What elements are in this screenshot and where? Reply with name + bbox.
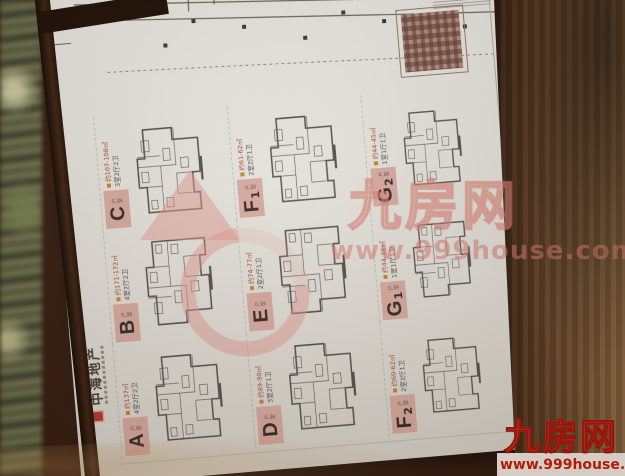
unit-cell-f2: F2 户型 约60-62㎡ 2室2厅1卫 [379,311,522,436]
unit-letter: F [394,415,415,429]
unit-letter-sub: 2 [381,178,397,187]
unit-label-tag: 户型 [244,183,257,191]
unit-spec: 约171-172㎡ 4室2厅2卫 [109,254,132,302]
unit-letter: G [375,186,396,203]
bullet-icon [250,286,254,290]
unit-label-tag: 户型 [387,284,400,292]
unit-rooms: 2室2厅1卫 [244,138,256,176]
unit-cell-e: E 户型 约74-77㎡ 2室2厅1卫 [236,209,379,334]
unit-rooms: 4室2厅2卫 [130,382,141,415]
unit-letter: D [260,422,281,438]
unit-spec: 约89-90㎡ 3室2厅1卫 [253,365,276,404]
unit-rooms: 2室2厅1卫 [397,354,409,392]
unit-label-tag: 户型 [263,413,276,421]
floor-plan-drawing [144,342,230,450]
unit-label-tag: 户型 [254,300,267,308]
site-corner-logo: 九房网 www.999house.com [500,420,622,476]
foliage-background [0,0,42,476]
unit-letter: G [384,300,405,317]
floor-plan-drawing [125,115,211,223]
unit-label: F1 户型 [237,178,265,218]
unit-label-tag: 户型 [396,399,409,407]
bullet-icon [260,400,264,404]
unit-rooms: 1室1厅1卫 [387,240,399,278]
unit-letter: C [107,206,128,222]
floor-plan-drawing [258,103,344,211]
unit-cell-b: B 户型 约171-172㎡ 4室2厅2卫 [103,220,246,345]
site-brand: 九房网 [500,420,622,456]
unit-label-tag: 户型 [377,170,390,178]
unit-label: G2 户型 [370,167,398,207]
floor-plan-drawing [411,327,488,421]
unit-letter: B [117,319,138,335]
floor-plan-drawing [134,228,220,336]
floor-plan-drawing [392,100,469,194]
unit-spec: 约107-108㎡ 3室2厅2卫 [99,141,122,189]
unit-label: C 户型 [103,189,131,229]
unit-letter-sub: 2 [400,406,416,415]
floorplan-poster: 中海地产 A 户型 约137㎡ 4室2厅2卫 [40,0,533,476]
photo-of-floorplan-board: 中海地产 A 户型 约137㎡ 4室2厅2卫 [0,0,625,476]
poster-content: 中海地产 A 户型 约137㎡ 4室2厅2卫 [40,0,533,476]
bullet-icon [393,388,397,392]
site-url: www.999house.com [500,456,622,476]
unit-rooms: 2室2厅1卫 [254,251,266,289]
bullet-icon [384,275,388,279]
unit-spec: 约74-77㎡ 2室2厅1卫 [243,251,266,290]
bullet-icon [374,161,378,165]
unit-label: B 户型 [113,303,141,343]
unit-cell-f1: F1 户型 约61-62㎡ 2室2厅1卫 [227,95,370,220]
unit-cell-g2: G2 户型 约44-45㎡ 1室1厅1卫 [360,84,503,209]
unit-rooms: 3室2厅1卫 [263,365,275,403]
unit-spec: 约44-46㎡ 1室1厅1卫 [377,240,400,279]
building-layout-table [395,4,468,77]
bullet-icon [107,184,111,188]
unit-grid: A 户型 约137㎡ 4室2厅2卫 B 户型 [93,84,522,458]
bullet-icon [117,297,121,301]
unit-label: E 户型 [246,291,274,331]
unit-rooms: 1室1厅1卫 [378,126,390,164]
unit-label: F2 户型 [390,394,418,434]
unit-label: G1 户型 [380,280,408,320]
unit-letter-sub: 1 [390,291,406,300]
floor-plan-drawing [402,213,479,307]
unit-spec: 约60-62㎡ 2室2厅1卫 [386,354,409,393]
unit-cell-c: C 户型 约107-108㎡ 3室2厅2卫 [93,107,236,232]
unit-letter: E [250,308,271,323]
bullet-icon [126,411,130,415]
unit-label-tag: 户型 [120,311,133,319]
floor-plan-drawing [268,217,354,325]
unit-letter-sub: 1 [248,190,264,199]
floor-plan-drawing [277,331,363,439]
unit-letter: F [241,199,262,213]
unit-label-tag: 户型 [110,197,123,205]
unit-label-tag: 户型 [130,424,143,432]
unit-cell-g1: G1 户型 约44-46㎡ 1室1厅1卫 [370,198,513,323]
unit-cell-d: D 户型 约89-90㎡ 3室2厅1卫 [246,323,389,448]
bullet-icon [241,172,245,176]
unit-spec: 约61-62㎡ 2室2厅1卫 [233,138,256,177]
unit-spec: 约44-45㎡ 1室1厅1卫 [367,126,390,165]
unit-spec: 约137㎡ 4室2厅2卫 [120,382,142,415]
